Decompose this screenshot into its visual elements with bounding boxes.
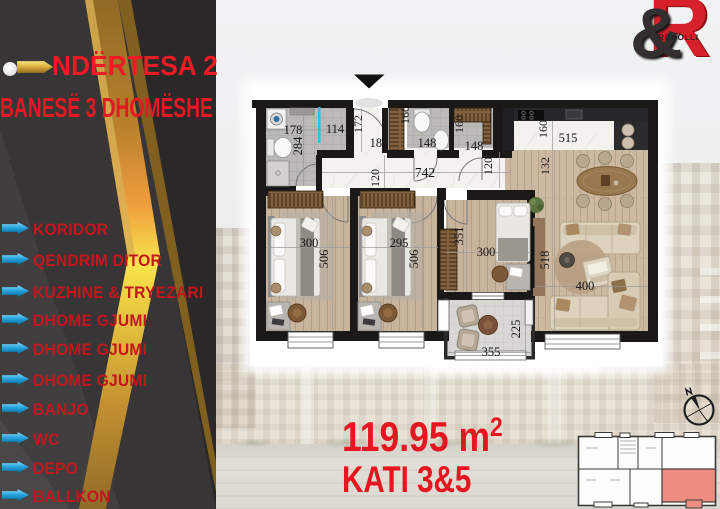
svg-text:120: 120 [368, 169, 382, 187]
svg-text:300: 300 [300, 236, 319, 250]
svg-text:284: 284 [291, 136, 305, 156]
svg-text:225: 225 [509, 320, 523, 339]
svg-text:160: 160 [398, 106, 412, 124]
svg-text:506: 506 [407, 250, 421, 269]
svg-text:295: 295 [390, 236, 409, 250]
svg-text:742: 742 [415, 165, 435, 180]
svg-text:178: 178 [284, 123, 303, 137]
svg-text:515: 515 [559, 131, 578, 145]
svg-text:400: 400 [576, 279, 595, 293]
svg-text:518: 518 [538, 251, 552, 270]
svg-text:181: 181 [370, 136, 389, 150]
svg-text:300: 300 [477, 245, 496, 259]
svg-text:160: 160 [452, 115, 466, 133]
svg-text:160: 160 [536, 120, 550, 138]
svg-text:RUKOLLI: RUKOLLI [658, 33, 699, 42]
svg-text:148: 148 [418, 136, 437, 150]
svg-text:351: 351 [452, 227, 466, 246]
svg-text:506: 506 [317, 250, 331, 269]
svg-text:172: 172 [351, 115, 365, 133]
svg-text:132: 132 [538, 157, 552, 175]
svg-text:355: 355 [482, 345, 501, 359]
svg-text:148: 148 [465, 139, 484, 153]
svg-text:114: 114 [326, 122, 345, 136]
svg-text:120: 120 [481, 157, 495, 175]
